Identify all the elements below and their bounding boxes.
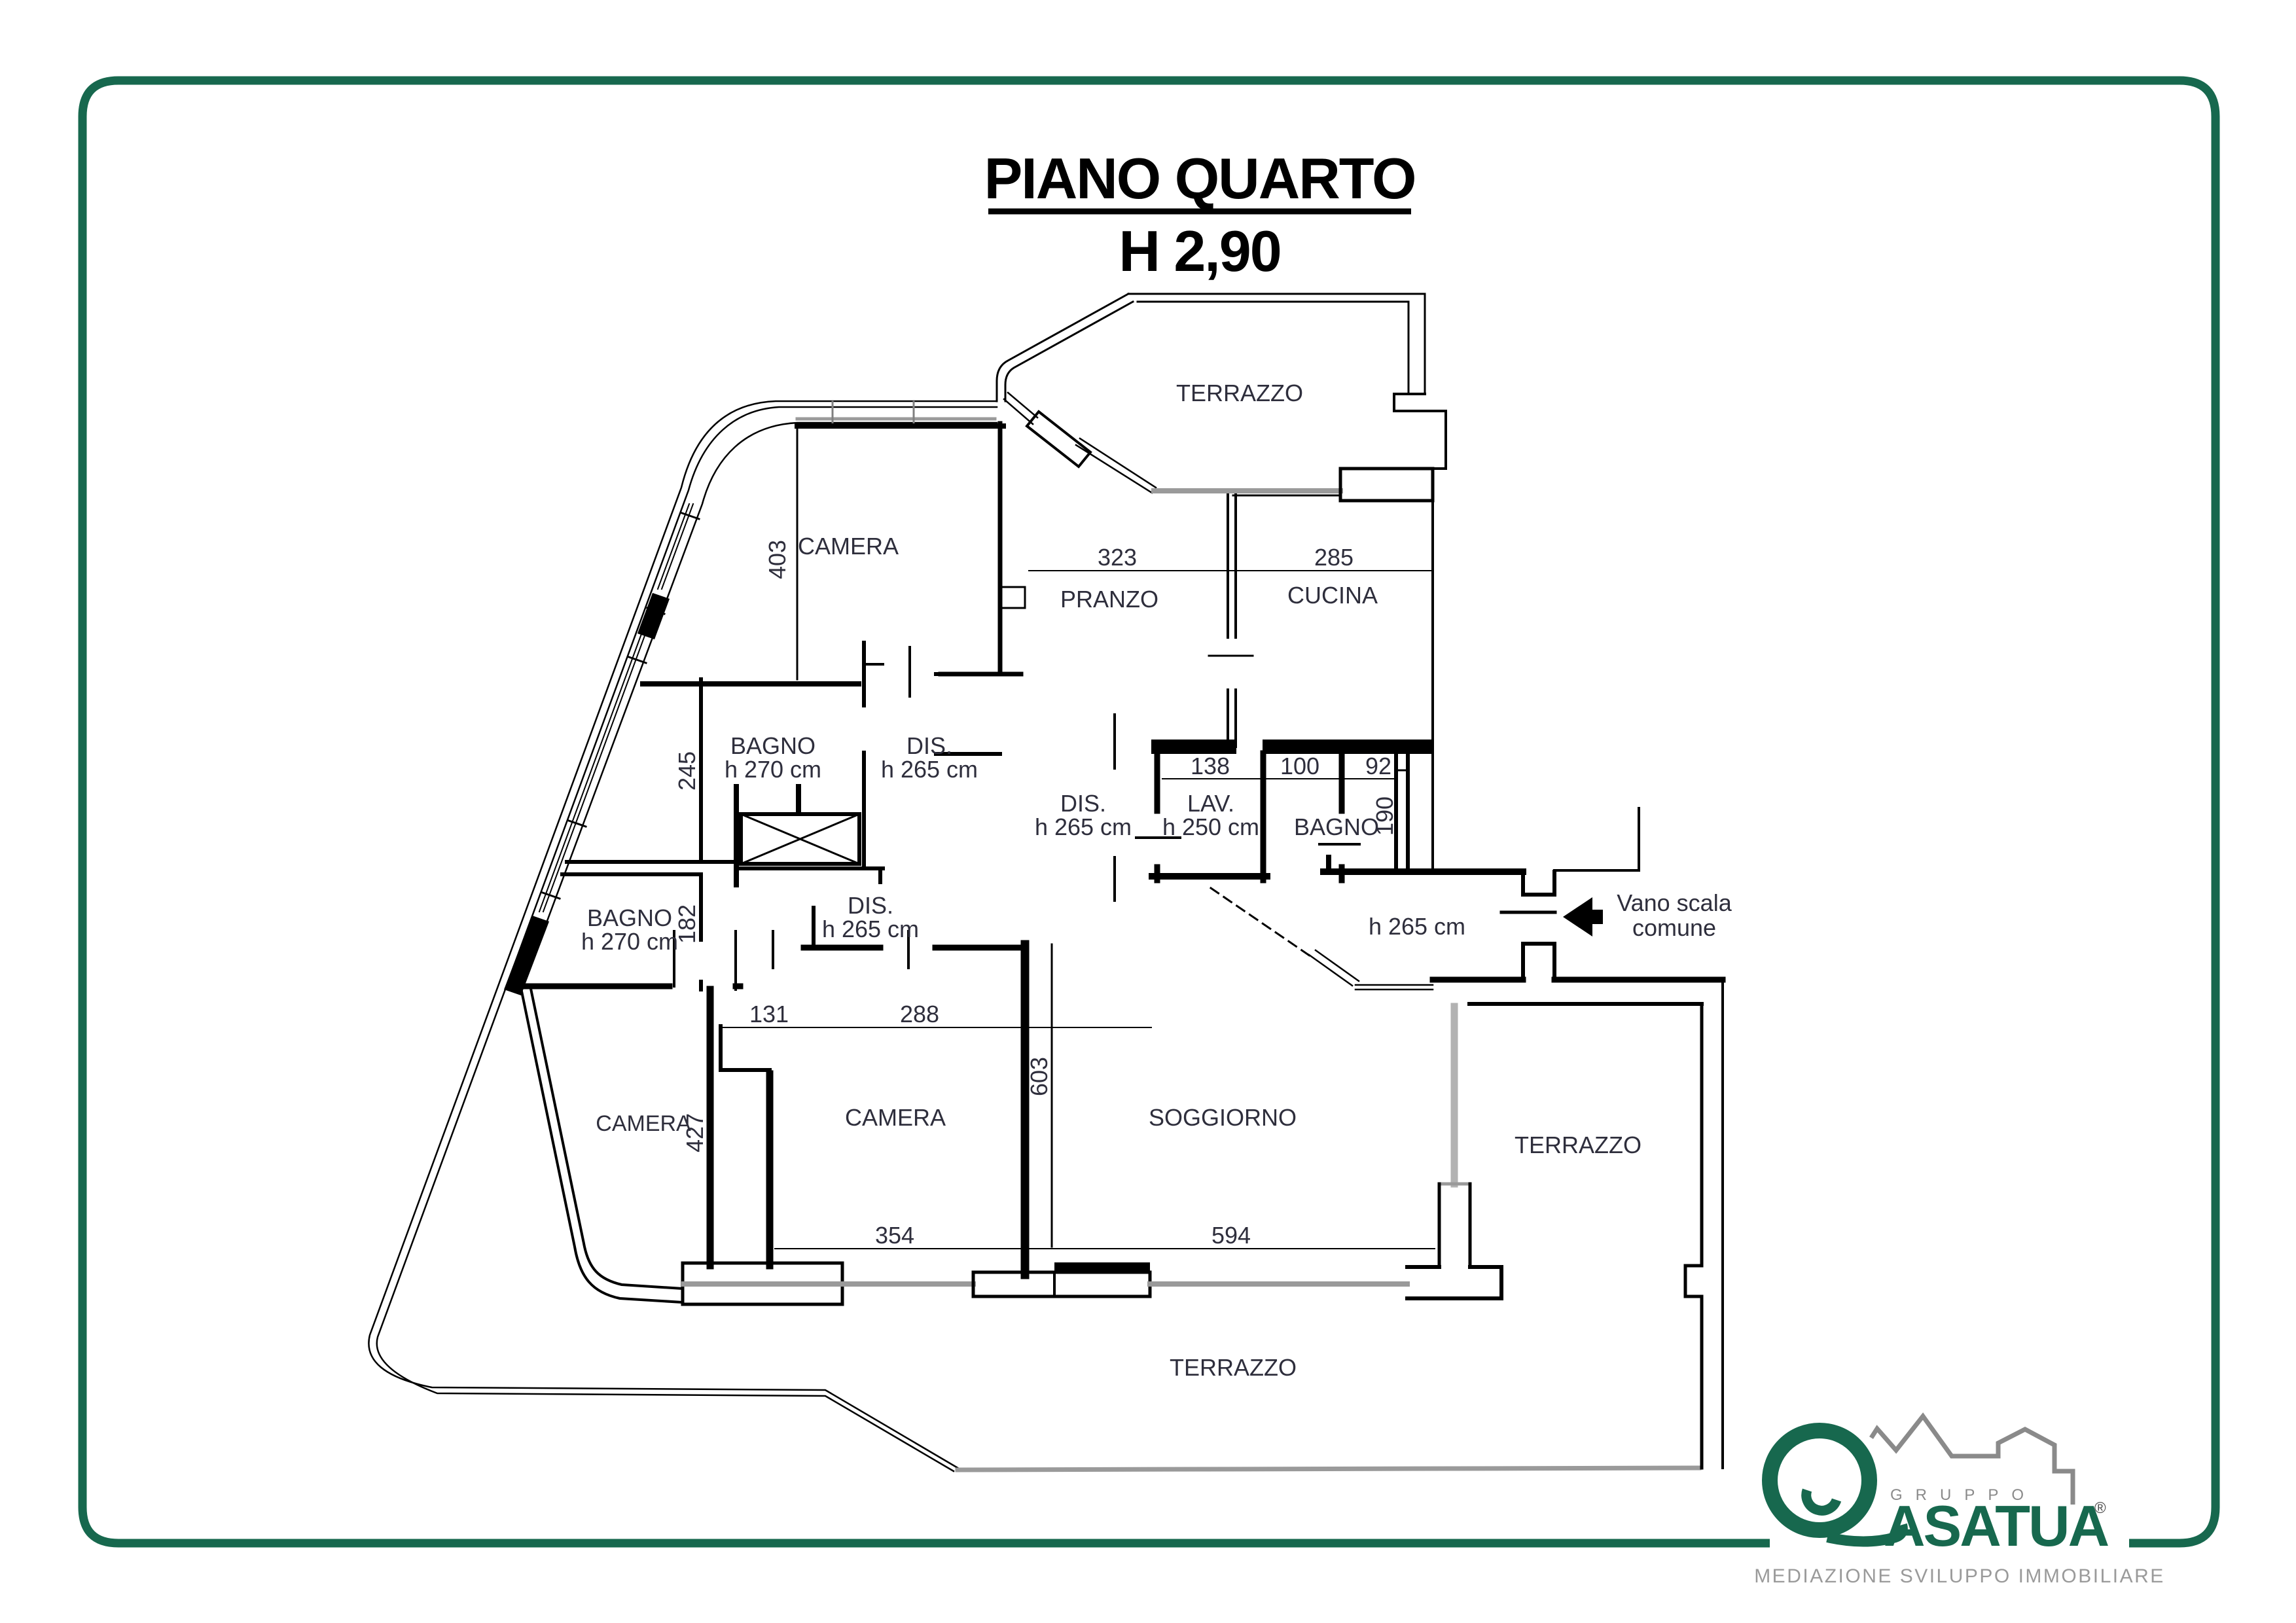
- svg-text:h 270 cm: h 270 cm: [581, 928, 678, 955]
- svg-text:h 265 cm: h 265 cm: [1035, 813, 1132, 840]
- svg-text:DIS.: DIS.: [848, 892, 893, 919]
- svg-text:138: 138: [1191, 753, 1230, 779]
- svg-text:288: 288: [900, 1001, 939, 1027]
- svg-text:h 250 cm: h 250 cm: [1162, 813, 1259, 840]
- svg-text:131: 131: [749, 1001, 789, 1027]
- svg-text:H 2,90: H 2,90: [1119, 219, 1280, 283]
- svg-text:427: 427: [681, 1113, 708, 1152]
- svg-text:ASATUA: ASATUA: [1884, 1493, 2109, 1558]
- svg-text:LAV.: LAV.: [1187, 790, 1234, 817]
- svg-text:TERRAZZO: TERRAZZO: [1515, 1132, 1641, 1158]
- svg-text:CAMERA: CAMERA: [798, 533, 899, 560]
- svg-text:®: ®: [2094, 1499, 2106, 1517]
- svg-text:603: 603: [1026, 1057, 1052, 1096]
- svg-text:BAGNO: BAGNO: [1294, 813, 1379, 840]
- svg-text:354: 354: [875, 1222, 914, 1249]
- svg-text:403: 403: [764, 540, 791, 579]
- svg-text:BAGNO: BAGNO: [730, 732, 816, 759]
- svg-text:BAGNO: BAGNO: [587, 904, 672, 931]
- svg-text:594: 594: [1211, 1222, 1251, 1249]
- svg-text:MEDIAZIONE SVILUPPO IMMOBILIAR: MEDIAZIONE SVILUPPO IMMOBILIARE: [1754, 1565, 2165, 1587]
- svg-text:h 265 cm: h 265 cm: [1369, 913, 1465, 940]
- svg-text:CAMERA: CAMERA: [845, 1104, 946, 1131]
- svg-text:182: 182: [673, 904, 700, 944]
- svg-text:PRANZO: PRANZO: [1060, 586, 1158, 613]
- svg-text:DIS.: DIS.: [1060, 790, 1106, 817]
- svg-text:Vano scala: Vano scala: [1617, 889, 1732, 916]
- svg-text:100: 100: [1280, 753, 1319, 779]
- svg-text:285: 285: [1314, 544, 1354, 571]
- svg-text:CUCINA: CUCINA: [1287, 582, 1378, 609]
- svg-text:TERRAZZO: TERRAZZO: [1176, 380, 1303, 406]
- svg-text:190: 190: [1371, 796, 1398, 836]
- svg-text:TERRAZZO: TERRAZZO: [1170, 1354, 1297, 1381]
- svg-text:CAMERA: CAMERA: [596, 1111, 691, 1136]
- svg-text:245: 245: [673, 751, 700, 791]
- svg-text:h 265 cm: h 265 cm: [881, 756, 978, 783]
- svg-text:comune: comune: [1632, 914, 1716, 941]
- svg-text:h 270 cm: h 270 cm: [725, 756, 821, 783]
- svg-text:DIS.: DIS.: [906, 732, 952, 759]
- svg-text:h 265 cm: h 265 cm: [822, 916, 919, 942]
- svg-text:323: 323: [1098, 544, 1137, 571]
- svg-text:SOGGIORNO: SOGGIORNO: [1149, 1104, 1297, 1131]
- svg-text:PIANO QUARTO: PIANO QUARTO: [984, 146, 1416, 211]
- svg-text:92: 92: [1365, 753, 1391, 779]
